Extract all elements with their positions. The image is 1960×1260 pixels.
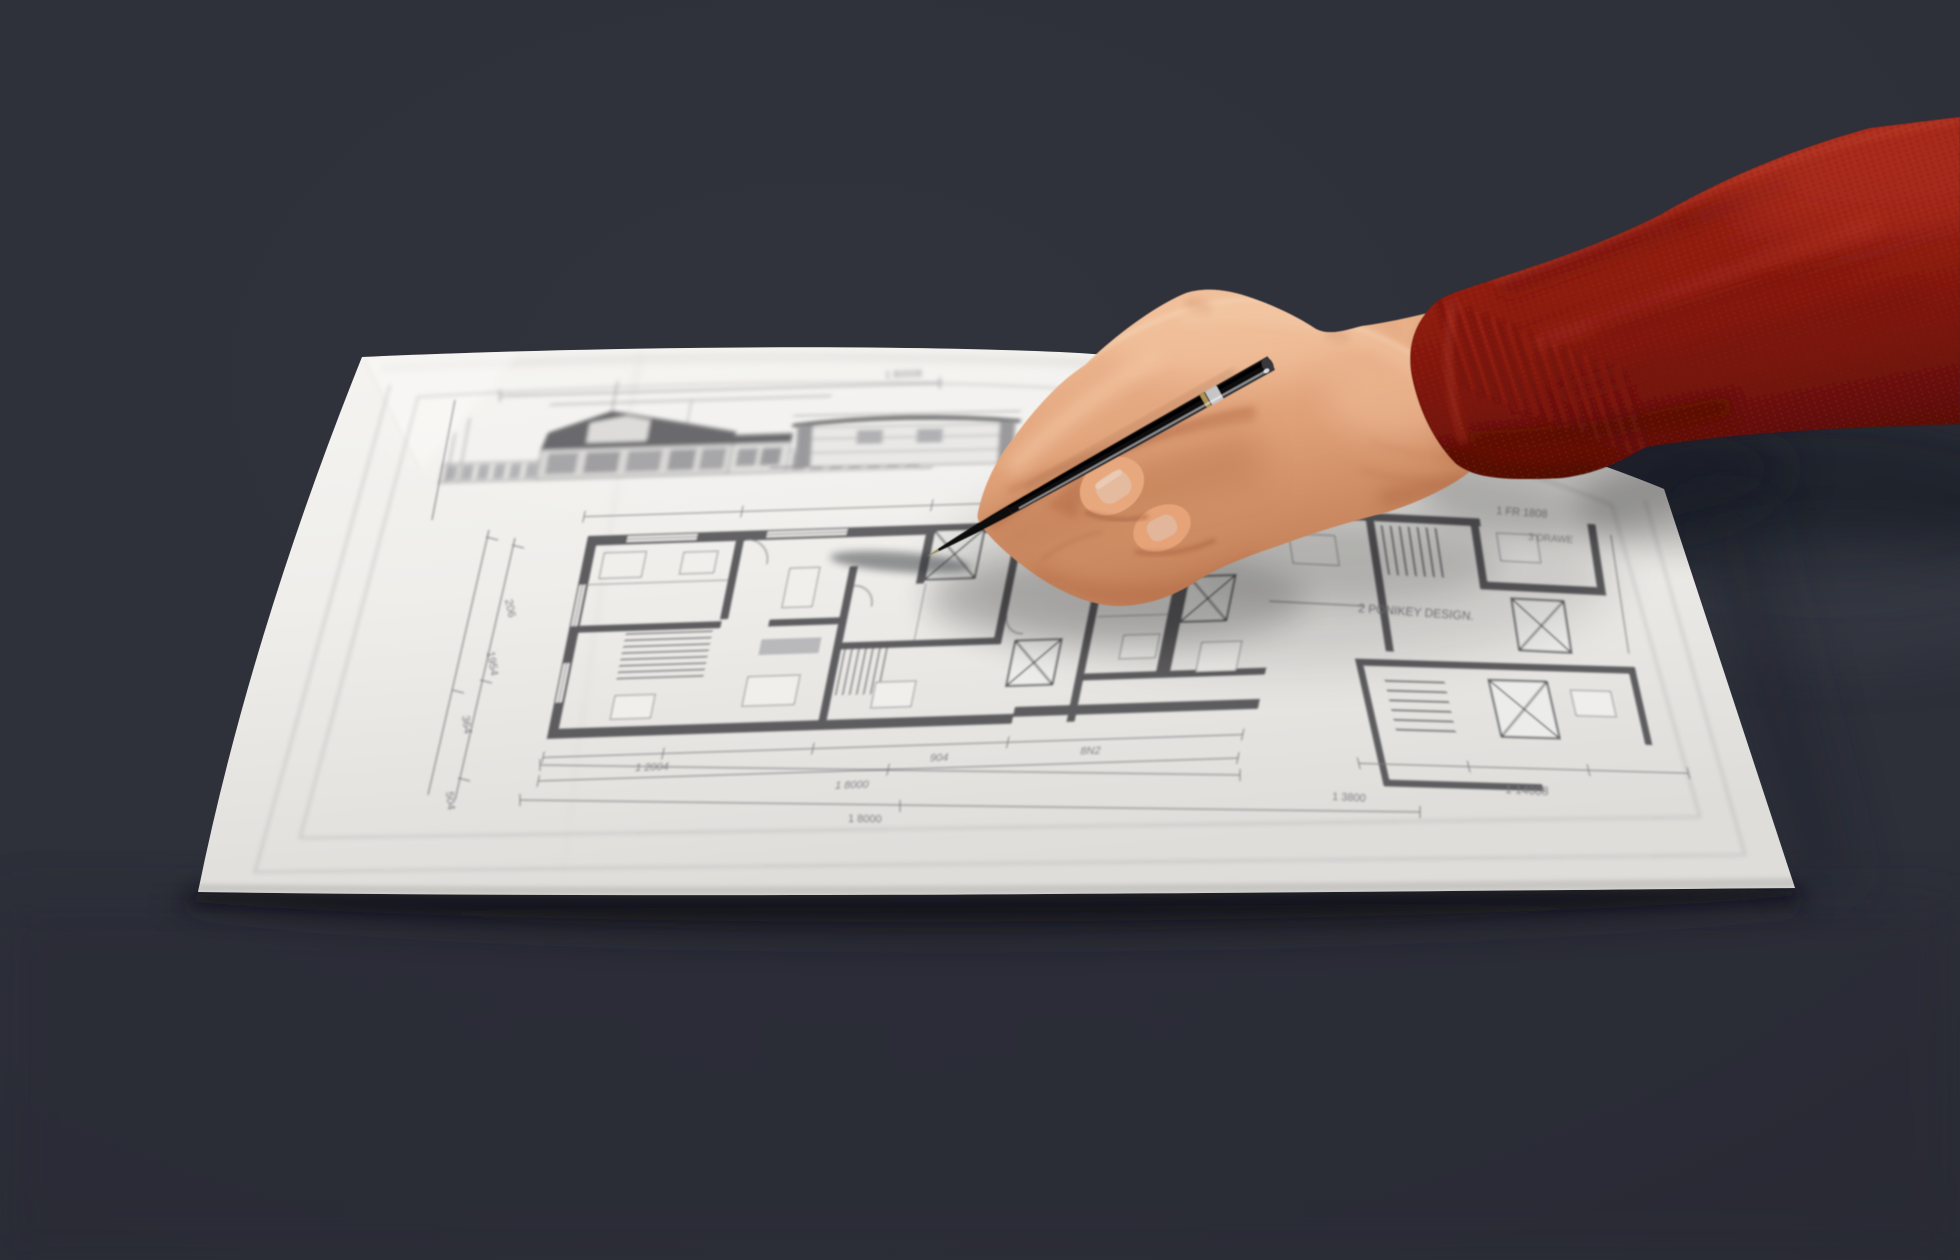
- svg-text:1 8000: 1 8000: [834, 779, 870, 792]
- svg-text:504: 504: [443, 791, 457, 811]
- svg-text:364: 364: [459, 715, 473, 735]
- svg-text:1 14008: 1 14008: [1505, 782, 1549, 798]
- svg-text:904: 904: [929, 752, 950, 764]
- svg-text:1 2004: 1 2004: [634, 761, 670, 774]
- svg-text:1 8000: 1 8000: [848, 813, 882, 826]
- svg-text:1 3800: 1 3800: [1332, 791, 1366, 805]
- svg-text:8N2: 8N2: [1079, 745, 1102, 757]
